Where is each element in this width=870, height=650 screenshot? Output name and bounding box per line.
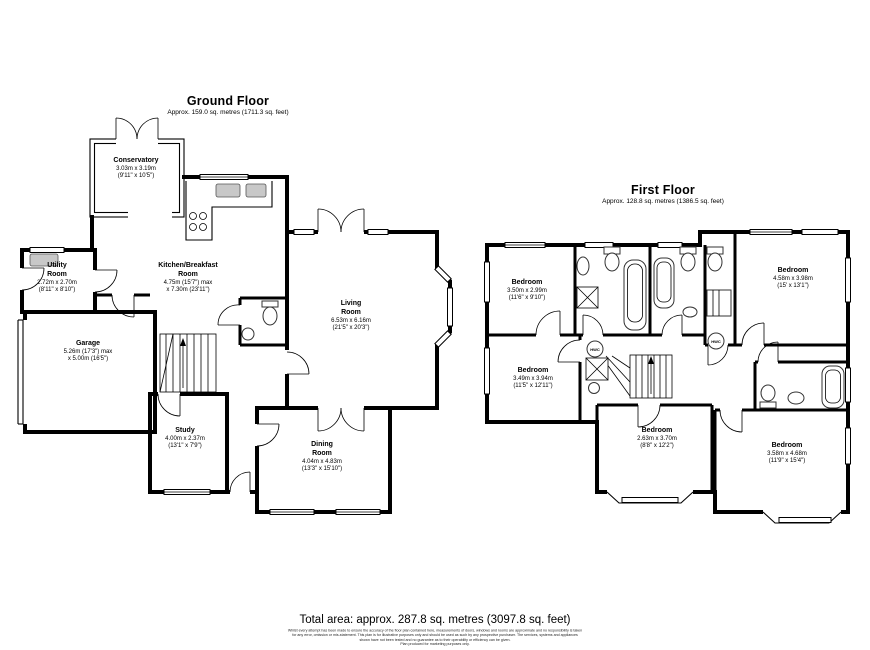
room-name: Study — [130, 427, 240, 436]
sink-icon — [589, 383, 600, 394]
ff-wc-fixtures — [707, 247, 731, 316]
room-dims: 2.63m x 3.70m (8'8" x 12'2") — [602, 436, 712, 450]
stove-icon — [190, 213, 207, 231]
room-name: Bedroom — [738, 267, 848, 276]
room-label-garage: Garage 5.26m (17'3") max x 5.00m (16'5") — [33, 340, 143, 364]
sink-icon — [246, 184, 266, 197]
sink-icon — [216, 184, 240, 197]
ff-bathroom-right-fixtures — [760, 366, 844, 408]
room-dims: 4.58m x 3.98m (15' x 13'1") — [738, 276, 848, 290]
first-floor-subtitle: Approx. 128.8 sq. metres (1386.5 sq. fee… — [553, 198, 773, 205]
room-dims: 3.50m x 2.99m (11'6" x 9'10") — [472, 288, 582, 302]
room-dims: 4.75m (15'7") max x 7.30m (23'11") — [133, 280, 243, 294]
hwc-label: HWC — [590, 347, 600, 352]
room-label-kitchen: Kitchen/Breakfast Room 4.75m (15'7") max… — [133, 262, 243, 294]
toilet-icon — [760, 402, 776, 408]
room-dims: 4.04m x 4.83m (13'3" x 15'10") — [267, 459, 377, 473]
toilet-icon — [761, 385, 775, 401]
sink-icon — [683, 307, 697, 317]
first-floor-title: First Floor — [553, 183, 773, 197]
room-label-living: Living Room 6.53m x 6.16m (21'5" x 20'3"… — [296, 300, 406, 332]
room-label-bedroom-top-left: Bedroom 3.50m x 2.99m (11'6" x 9'10") — [472, 279, 582, 303]
toilet-icon — [262, 301, 278, 307]
room-label-study: Study 4.00m x 2.37m (13'1" x 7'9") — [130, 427, 240, 451]
room-name: Bedroom — [602, 427, 712, 436]
room-dims: 3.58m x 4.68m (11'9" x 15'4") — [732, 451, 842, 465]
room-label-utility: Utility Room 2.72m x 2.70m (8'11" x 8'10… — [2, 262, 112, 294]
gf-kitchen-counter — [186, 181, 272, 240]
toilet-icon — [263, 307, 277, 325]
gf-stairs-icon — [160, 334, 216, 392]
room-name: Living Room — [296, 300, 406, 318]
ff-stairs-icon — [604, 355, 672, 398]
total-area-text: Total area: approx. 287.8 sq. metres (30… — [0, 614, 870, 626]
room-label-bedroom-bottom-right: Bedroom 3.58m x 4.68m (11'9" x 15'4") — [732, 442, 842, 466]
room-dims: 5.26m (17'3") max x 5.00m (16'5") — [33, 349, 143, 363]
ff-landing-fixtures: HWC HWC — [586, 333, 724, 394]
ground-floor-subtitle: Approx. 159.0 sq. metres (1711.3 sq. fee… — [118, 109, 338, 116]
room-name: Garage — [33, 340, 143, 349]
room-label-bedroom-bottom-mid: Bedroom 2.63m x 3.70m (8'8" x 12'2") — [602, 427, 712, 451]
room-dims: 3.03m x 3.19m (9'11" x 10'5") — [81, 166, 191, 180]
room-name: Bedroom — [472, 279, 582, 288]
toilet-icon — [681, 253, 695, 271]
disclaimer-text: Whilst every attempt has been made to en… — [174, 629, 696, 648]
room-name: Dining Room — [267, 441, 377, 459]
toilet-icon — [708, 253, 722, 271]
airing-cupboard-icon — [586, 358, 608, 380]
room-label-conservatory: Conservatory 3.03m x 3.19m (9'11" x 10'5… — [81, 157, 191, 181]
room-dims: 4.00m x 2.37m (13'1" x 7'9") — [130, 436, 240, 450]
room-name: Bedroom — [478, 367, 588, 376]
room-name: Kitchen/Breakfast Room — [133, 262, 243, 280]
sink-icon — [577, 257, 589, 275]
ground-floor-title-block: Ground Floor Approx. 159.0 sq. metres (1… — [118, 94, 338, 116]
hwc-label: HWC — [711, 339, 721, 344]
shower-icon — [707, 290, 731, 316]
ff-bathroom1-fixtures — [577, 247, 646, 330]
room-name: Bedroom — [732, 442, 842, 451]
room-dims: 2.72m x 2.70m (8'11" x 8'10") — [2, 280, 112, 294]
room-label-bedroom-mid-left: Bedroom 3.49m x 3.94m (11'5" x 12'11") — [478, 367, 588, 391]
sink-icon — [788, 392, 804, 404]
toilet-icon — [605, 253, 619, 271]
sink-icon — [242, 328, 254, 340]
first-floor-title-block: First Floor Approx. 128.8 sq. metres (13… — [553, 183, 773, 205]
room-dims: 3.49m x 3.94m (11'5" x 12'11") — [478, 376, 588, 390]
room-name: Utility Room — [2, 262, 112, 280]
ground-floor-title: Ground Floor — [118, 94, 338, 108]
room-name: Conservatory — [81, 157, 191, 166]
ff-bathroom2-fixtures — [654, 247, 697, 317]
gf-wc-fixtures — [242, 301, 278, 340]
room-label-dining: Dining Room 4.04m x 4.83m (13'3" x 15'10… — [267, 441, 377, 473]
room-label-bedroom-top-right: Bedroom 4.58m x 3.98m (15' x 13'1") — [738, 267, 848, 291]
gf-garage-door — [18, 320, 29, 424]
room-dims: 6.53m x 6.16m (21'5" x 20'3") — [296, 318, 406, 332]
floorplan-page: HWC HWC Ground Floor Approx. 159.0 sq. m… — [0, 0, 870, 650]
